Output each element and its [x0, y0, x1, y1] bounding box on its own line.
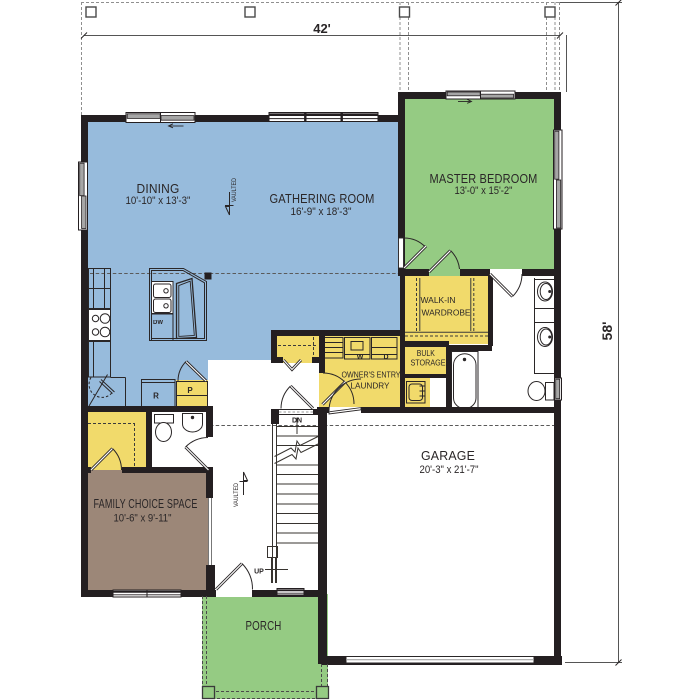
svg-text:13'-0" x 15'-2": 13'-0" x 15'-2" — [455, 185, 513, 197]
svg-text:16'-9" x 18'-3": 16'-9" x 18'-3" — [291, 206, 352, 218]
svg-text:W: W — [357, 354, 364, 361]
svg-text:WARDROBE: WARDROBE — [422, 308, 471, 318]
svg-text:GATHERING ROOM: GATHERING ROOM — [270, 191, 375, 206]
svg-text:WALK-IN: WALK-IN — [421, 295, 456, 305]
svg-text:UP: UP — [254, 569, 264, 576]
svg-text:P: P — [187, 386, 193, 395]
svg-text:GARAGE: GARAGE — [421, 448, 475, 463]
svg-text:10'-6" x 9'-11": 10'-6" x 9'-11" — [114, 513, 172, 525]
svg-text:MASTER BEDROOM: MASTER BEDROOM — [430, 171, 538, 186]
svg-text:42': 42' — [313, 21, 331, 36]
svg-text:OWNER'S ENTRY/: OWNER'S ENTRY/ — [342, 370, 404, 380]
svg-text:STORAGE: STORAGE — [411, 358, 446, 368]
svg-text:FAMILY CHOICE SPACE: FAMILY CHOICE SPACE — [94, 496, 198, 511]
svg-text:LAUNDRY: LAUNDRY — [351, 381, 390, 391]
svg-text:10'-10" x 13'-3": 10'-10" x 13'-3" — [126, 195, 191, 207]
svg-text:BULK: BULK — [417, 348, 435, 358]
svg-text:VAULTED: VAULTED — [231, 178, 238, 202]
svg-text:DW: DW — [153, 320, 163, 326]
svg-text:20'-3" x 21'-7": 20'-3" x 21'-7" — [420, 464, 479, 476]
svg-text:PORCH: PORCH — [246, 618, 282, 633]
svg-text:D: D — [383, 354, 388, 361]
svg-text:VAULTED: VAULTED — [233, 483, 240, 507]
svg-text:DN: DN — [292, 418, 302, 425]
svg-text:DINING: DINING — [137, 181, 180, 196]
svg-text:58': 58' — [599, 322, 615, 341]
svg-text:R: R — [153, 392, 159, 401]
